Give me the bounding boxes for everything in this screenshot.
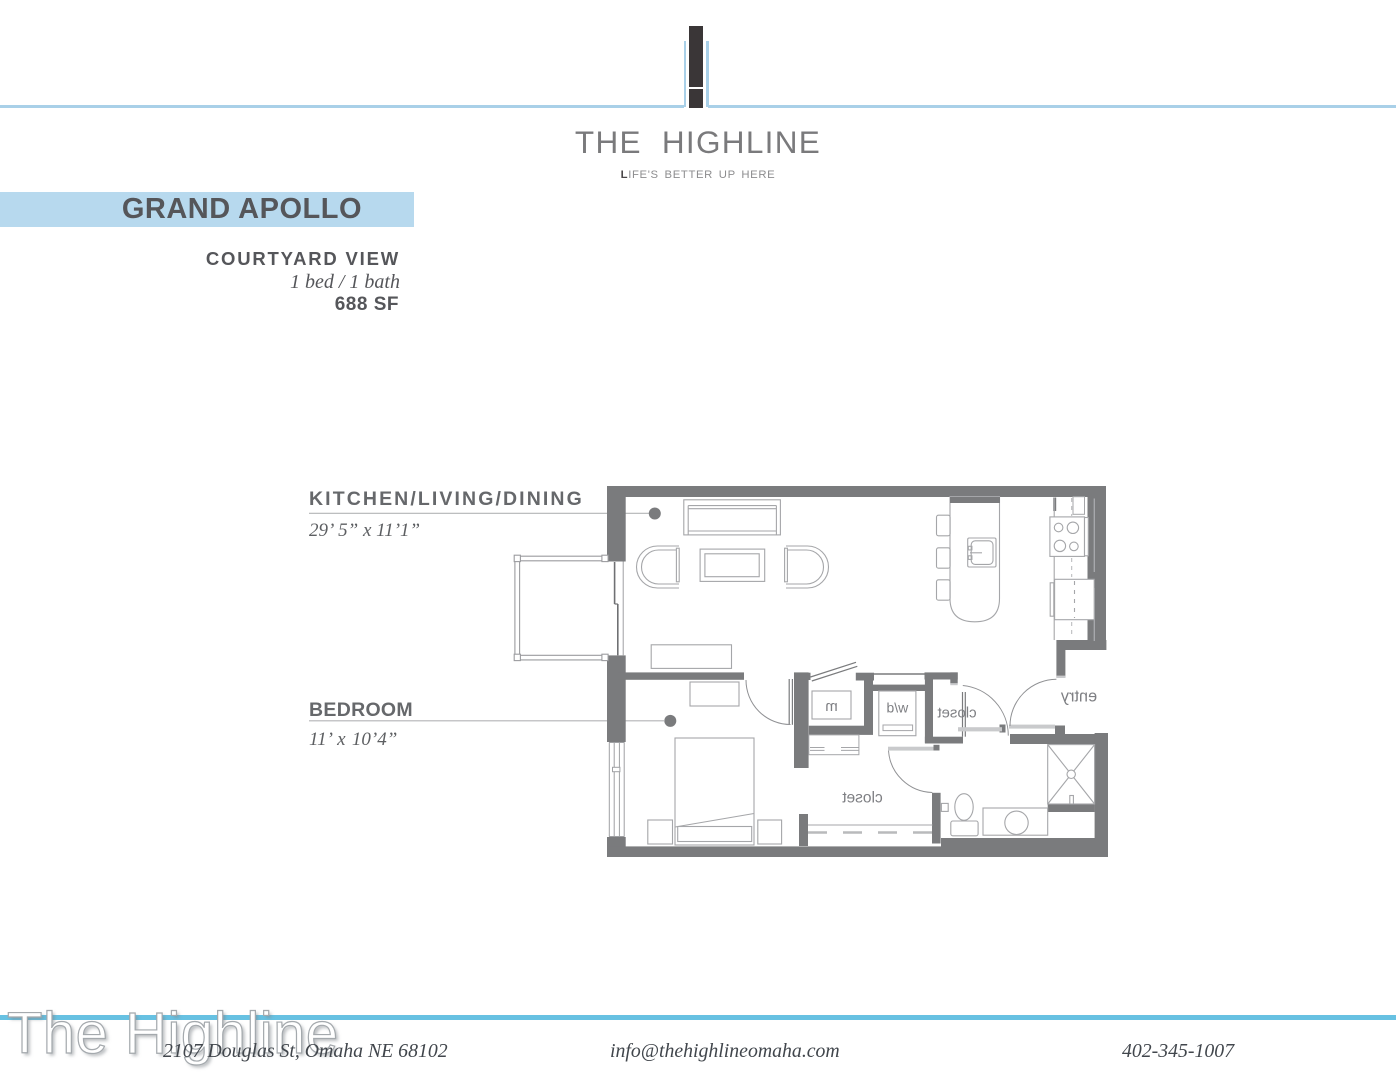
svg-text:w/d: w/d <box>887 700 910 716</box>
svg-text:entry: entry <box>1060 688 1097 706</box>
svg-text:closet: closet <box>842 790 883 807</box>
svg-text:closet: closet <box>937 705 977 722</box>
svg-text:m: m <box>825 698 838 715</box>
